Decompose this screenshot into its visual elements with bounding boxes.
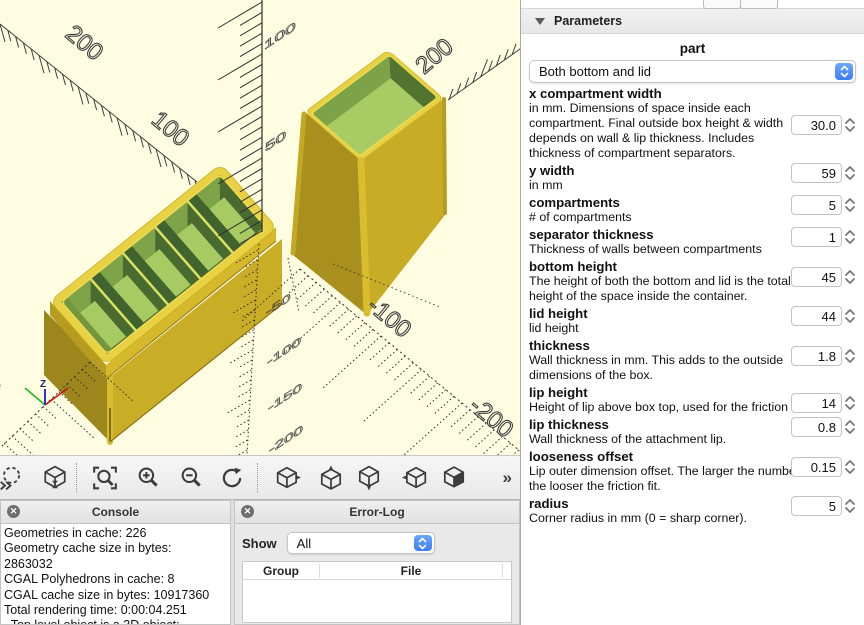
collapse-triangle-icon[interactable] [535,18,545,25]
error-log-table-header: Group File [243,562,511,580]
console-close-icon[interactable]: ✕ [7,505,20,518]
stepper-icon[interactable] [844,268,856,286]
parameters-body: part Both bottom and lid x compartment w… [521,34,864,526]
part-dropdown-value: Both bottom and lid [530,64,855,79]
param-desc: Thickness of walls between compartments [529,242,805,257]
param-name: compartments [529,194,790,210]
param-name: bottom height [529,258,790,274]
param-name: separator thickness [529,226,790,242]
param-row-y-width: y width in mm [529,162,856,193]
compartments-input[interactable] [791,195,842,215]
console-panel: ✕ Console Geometries in cache: 226 Geome… [0,500,231,625]
param-desc: Lip outer dimension offset. The larger t… [529,464,805,494]
param-row-compartments: compartments # of compartments [529,194,856,225]
param-row-lip-height: lip height Height of lip above box top, … [529,384,856,415]
openscad-window: 200 100 200 [0,0,864,625]
button-fragment [703,0,741,9]
error-log-title: Error-Log [349,505,404,519]
stepper-icon[interactable] [844,196,856,214]
bottom-height-input[interactable] [791,267,842,287]
param-name: lip thickness [529,416,790,432]
part-label: part [529,41,856,56]
param-name: lip height [529,384,790,400]
gizmo-z-label: Z [40,379,46,390]
x-compartment-width-input[interactable] [791,115,842,135]
parameters-title: Parameters [554,14,622,28]
column-header-group[interactable]: Group [243,564,320,578]
bottom-docks: ✕ Console Geometries in cache: 226 Geome… [0,500,520,625]
toolbar-separator [76,463,78,493]
param-name: y width [529,162,790,178]
part-dropdown[interactable]: Both bottom and lid [529,60,856,83]
error-log-table[interactable]: Group File [242,561,512,623]
show-filter-dropdown[interactable]: All [287,532,435,554]
param-name: x compartment width [529,85,790,101]
error-log-titlebar[interactable]: ✕ Error-Log [235,501,519,524]
param-name: looseness offset [529,448,790,464]
radius-input[interactable] [791,496,842,516]
show-filter-value: All [288,536,434,551]
param-name: lid height [529,305,790,321]
stepper-icon[interactable] [844,418,856,436]
params-top-strip [521,0,864,8]
console-line: Geometries in cache: 226 [4,526,230,541]
view-left-icon[interactable] [400,461,430,495]
stepper-icon[interactable] [844,307,856,325]
param-row-radius: radius Corner radius in mm (0 = sharp co… [529,495,856,526]
dropdown-chevrons-icon [835,63,853,80]
reset-view-icon[interactable] [217,461,247,495]
error-log-body: Show All Group [235,524,519,624]
y-width-input[interactable] [791,163,842,183]
console-titlebar[interactable]: ✕ Console [1,501,230,524]
view-top-icon[interactable] [316,461,346,495]
3d-viewport[interactable]: 200 100 200 [0,0,520,455]
error-log-close-icon[interactable]: ✕ [241,505,254,518]
separator-thickness-input[interactable] [791,227,842,247]
param-row-x-compartment-width: x compartment width in mm. Dimensions of… [529,85,856,161]
parameters-header[interactable]: Parameters [521,8,864,34]
param-row-lid-height: lid height lid height [529,305,856,336]
console-line: Total rendering time: 0:00:04.251 [4,603,230,618]
param-name: radius [529,495,790,511]
param-desc: lid height [529,321,805,336]
toolbar-separator-2 [257,463,259,493]
param-desc: in mm [529,178,805,193]
preview-icon[interactable] [0,461,26,495]
param-name: thickness [529,337,790,353]
error-log-panel: ✕ Error-Log Show All [234,500,520,625]
looseness-offset-input[interactable] [791,457,842,477]
zoom-in-icon[interactable] [133,461,163,495]
stepper-icon[interactable] [844,228,856,246]
stepper-icon[interactable] [844,116,856,134]
console-line: 2863032 [4,557,230,572]
stepper-icon[interactable] [844,394,856,412]
param-desc: # of compartments [529,210,805,225]
param-desc: Wall thickness of the attachment lip. [529,432,805,447]
view-all-icon[interactable] [90,461,120,495]
perspective-view-icon[interactable] [439,461,469,495]
stepper-icon[interactable] [844,347,856,365]
zoom-out-icon[interactable] [176,461,206,495]
customizer-panel: Parameters part Both bottom and lid x co… [520,0,864,625]
button-fragment [740,0,778,9]
dropdown-chevrons-icon [414,535,432,551]
param-desc: Corner radius in mm (0 = sharp corner). [529,511,805,526]
param-row-looseness-offset: looseness offset Lip outer dimension off… [529,448,856,494]
render-icon[interactable] [40,461,70,495]
lid-height-input[interactable] [791,306,842,326]
view-bottom-icon[interactable] [354,461,384,495]
console-line: CGAL cache size in bytes: 10917360 [4,588,230,603]
console-line: Geometry cache size in bytes: [4,541,230,556]
param-row-thickness: thickness Wall thickness in mm. This add… [529,337,856,383]
column-header-file[interactable]: File [320,564,503,578]
left-column: 200 100 200 [0,0,520,625]
stepper-icon[interactable] [844,164,856,182]
param-desc: in mm. Dimensions of space inside each c… [529,101,805,161]
show-filter-label: Show [242,536,277,551]
param-row-lip-thickness: lip thickness Wall thickness of the atta… [529,416,856,447]
param-desc: Wall thickness in mm. This adds to the o… [529,353,805,383]
stepper-icon[interactable] [844,497,856,515]
3d-scene: 200 100 200 [0,0,520,455]
param-row-separator-thickness: separator thickness Thickness of walls b… [529,226,856,257]
toolbar-overflow-button[interactable]: » [503,468,512,488]
stepper-icon[interactable] [844,458,856,476]
thickness-input[interactable] [791,346,842,366]
param-desc: Height of lip above box top, used for th… [529,400,805,415]
param-row-bottom-height: bottom height The height of both the bot… [529,258,856,304]
console-output[interactable]: Geometries in cache: 226 Geometry cache … [1,524,230,624]
lip-thickness-input[interactable] [791,417,842,437]
console-title: Console [92,505,139,519]
console-line: Top level object is a 3D object: [4,618,230,624]
viewport-toolbar: » [0,455,520,500]
lip-height-input[interactable] [791,393,842,413]
param-desc: The height of both the bottom and lid is… [529,274,805,304]
view-right-icon[interactable] [273,461,303,495]
console-line: CGAL Polyhedrons in cache: 8 [4,572,230,587]
